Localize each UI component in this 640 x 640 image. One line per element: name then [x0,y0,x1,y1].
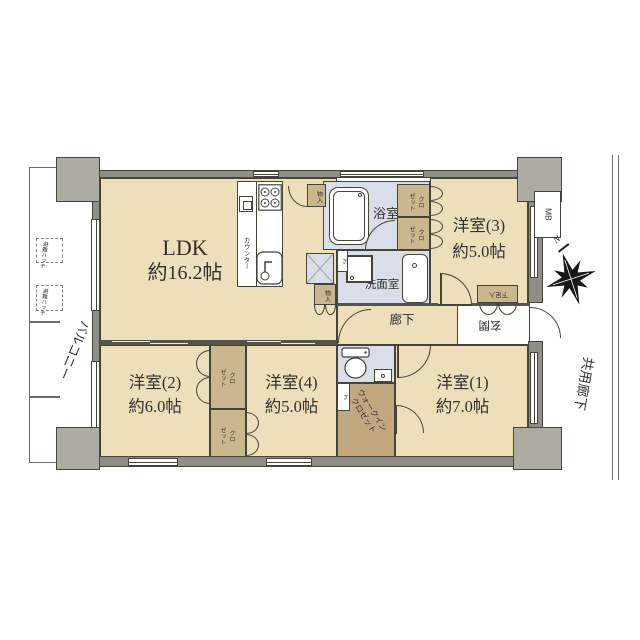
closet-label-line2: ゼット [217,418,226,454]
closet-label-line2: ゼット [406,220,415,249]
closet-label: クロ ゼット [406,220,424,249]
ldk-size: 約16.2帖 [110,261,260,286]
vanity-faucet [412,263,417,268]
window [530,352,538,424]
closet-label: クロ ゼット [217,418,235,454]
room4-size: 約5.0帖 [246,397,337,418]
window [253,171,279,177]
hallway-label: 廊下 [382,313,422,329]
balcony-divider [30,396,60,398]
closet-label-line1: クロ [415,187,424,216]
shoe-cabinet-label: 下足入 [478,290,519,298]
storage-mono-label: 物入 [314,188,322,206]
closet-room3-a: クロ ゼット [397,184,430,217]
closet-label: クロ ゼット [406,187,424,216]
sliding-door [150,343,188,345]
meter-box: MB [534,191,561,238]
room1-name: 洋室(1) [397,373,528,394]
compass-icon [537,244,606,314]
closet-label-line1: クロ [226,418,235,454]
column [513,427,562,470]
kitchen-sink-icon [256,250,283,286]
window [266,458,312,466]
closet-room3-b: クロ ゼット [397,217,430,250]
column [56,157,100,202]
hand-wash-faucet [381,374,385,378]
window [340,171,424,177]
ldk-name: LDK [115,234,255,262]
common-corridor-label: 共用廊下 [569,350,597,416]
wall-hall-north [337,303,438,306]
room2-size: 約6.0帖 [100,397,210,418]
evacuation-hatch-label: 避難ハッチ [38,240,49,261]
pipe-space-label: PS [340,253,346,269]
sliding-door [112,341,150,343]
room3-name: 洋室(3) [430,216,528,237]
window [91,219,100,311]
refrigerator-space [306,253,334,284]
hand-wash-basin [374,369,392,382]
sliding-door [247,341,281,343]
room4-name: 洋室(4) [246,373,337,394]
evacuation-hatch: 避難ハッチ [36,238,63,263]
closet-label-line1: クロ [415,220,424,249]
stove-icon [258,184,282,211]
bathtub [329,187,369,245]
vanity-sink [402,254,428,303]
closet-label-line2: ゼット [217,358,226,398]
storage-mono-lower: 物入 [314,284,336,305]
window [128,458,178,466]
wall-north [78,170,530,178]
toilet-icon [341,347,373,380]
floor-plan: 避難ハッチ 避難ハッチ バルコニー カウンター [0,0,640,640]
washer-drain [350,276,354,280]
evacuation-hatch: 避難ハッチ [36,285,63,311]
genkan-label: 玄関 [470,317,510,331]
bathtub-faucet [358,193,362,197]
room3-size: 約5.0帖 [430,242,528,263]
room2-name: 洋室(2) [100,373,210,394]
sliding-door [281,343,315,345]
storage-mono-upper: 物入 [307,184,326,207]
balcony-divider [30,321,60,323]
evacuation-hatch-label: 避難ハッチ [38,287,49,308]
column [56,427,100,470]
shoe-cabinet: 下足入 [477,285,518,303]
corridor-boundary [612,155,619,480]
closet-label-line2: ゼット [406,187,415,216]
storage-mono-label: 物入 [322,287,330,305]
closet-label: クロ ゼット [217,358,235,398]
closet-label-line1: クロ [226,358,235,398]
kitchen-panel [239,196,253,212]
meter-box-label: MB [543,202,554,226]
pipe-space: PS [337,250,348,272]
